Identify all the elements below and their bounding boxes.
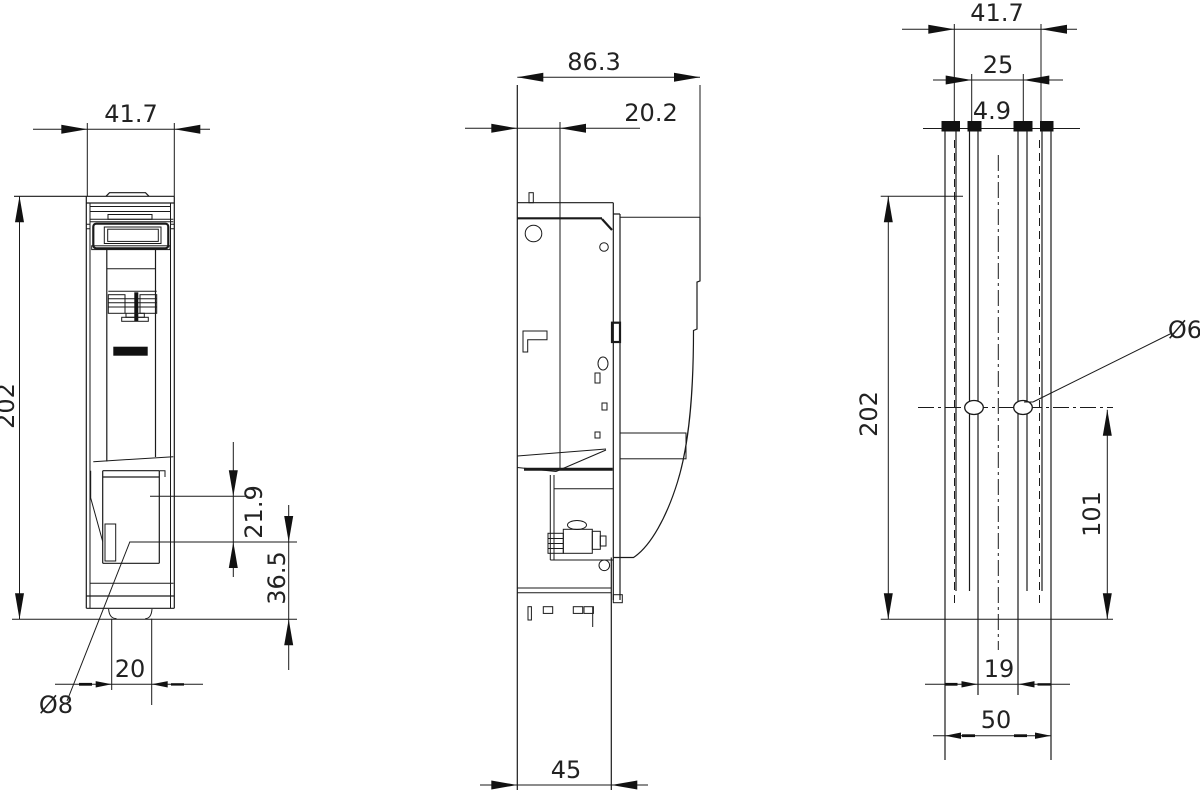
rear-width-value: 41.7 <box>970 0 1023 27</box>
side-depth-value: 86.3 <box>567 48 620 76</box>
side-offset-value: 20.2 <box>624 99 677 127</box>
dim-side-depth: 86.3 <box>517 48 700 219</box>
dim-rear-slot: 4.9 <box>923 97 1080 132</box>
side-handle-curve <box>613 217 700 557</box>
front-base-value: 36.5 <box>263 551 291 604</box>
dim-front-foot: 20 <box>55 619 203 705</box>
dim-side-base: 45 <box>480 756 648 790</box>
side-body <box>517 85 700 790</box>
technical-drawing: 41.7 202 <box>0 0 1200 800</box>
rear-rails <box>918 131 1113 760</box>
side-view: 86.3 20.2 <box>465 48 700 790</box>
dim-front-cutout: 21.9 36.5 <box>130 442 297 670</box>
drawing-canvas: 41.7 202 <box>0 0 1200 800</box>
front-window <box>108 229 159 241</box>
front-terminal-hole <box>105 524 116 561</box>
rear-view: 41.7 25 4.9 <box>855 0 1200 760</box>
front-foot-value: 20 <box>115 655 146 683</box>
callout-hole-front: Ø8 <box>39 542 130 720</box>
dim-rear-base-width: 50 <box>933 620 1051 760</box>
nameplate <box>113 347 147 356</box>
front-view: 41.7 202 <box>0 100 297 719</box>
dim-front-width: 41.7 <box>33 100 210 196</box>
rear-slot-value: 4.9 <box>973 97 1011 125</box>
front-height-value: 202 <box>0 383 20 429</box>
rear-hole-value: Ø6 <box>1168 316 1200 344</box>
front-hole-value: Ø8 <box>39 691 73 719</box>
rear-hole-offset-value: 101 <box>1078 491 1106 537</box>
mounting-hole-right <box>1014 401 1033 415</box>
dim-rear-hole-spacing: 19 <box>925 655 1070 688</box>
side-lower-claw <box>620 433 686 459</box>
rear-base-width-value: 50 <box>981 706 1012 734</box>
rear-height-value: 202 <box>855 391 883 437</box>
front-width-value: 41.7 <box>104 100 157 128</box>
dim-front-height: 202 <box>0 196 24 619</box>
front-lower-compartment <box>86 457 174 619</box>
front-cutout-value: 21.9 <box>240 485 268 538</box>
side-base-value: 45 <box>551 756 582 784</box>
dim-side-offset: 20.2 <box>465 99 678 470</box>
rear-spacing-value: 25 <box>983 51 1014 79</box>
mounting-hole-left <box>965 401 984 415</box>
front-body <box>14 193 174 609</box>
front-latch <box>108 291 156 321</box>
dim-rear-hole-offset: 101 <box>1078 410 1112 620</box>
side-mechanism <box>517 449 613 571</box>
rear-hole-spacing-value: 19 <box>984 655 1015 683</box>
